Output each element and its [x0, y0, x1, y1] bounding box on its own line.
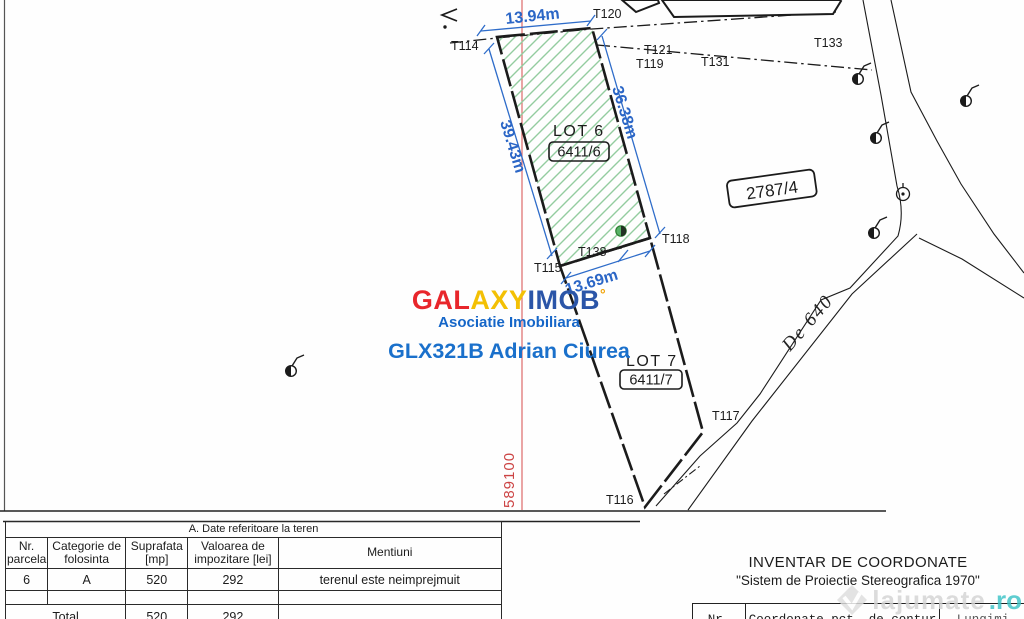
logo-segment-blue: IMOB	[527, 285, 600, 315]
agency-subtitle: Asociatie Imobiliara	[378, 315, 640, 331]
site-watermark: lajumate.ro	[835, 583, 1022, 617]
col-header-valoarea: Valoarea de impozitare [lei]	[188, 538, 278, 569]
empty-row	[6, 591, 502, 605]
land-data-table: A. Date referitoare la teren Nr. parcela…	[5, 521, 502, 619]
total-valoare: 292	[188, 605, 278, 619]
point-label-t119: T119	[636, 57, 664, 71]
road-edge-east	[891, 0, 1024, 273]
logo-registered-mark: °	[600, 286, 606, 302]
cell-valoare: 292	[188, 569, 278, 591]
direction-arrow-icon	[442, 9, 457, 29]
cell-mentiuni: terenul este neimprejmuit	[278, 569, 502, 591]
site-watermark-tld: .ro	[989, 585, 1022, 616]
point-label-t133: T133	[814, 36, 843, 50]
grid-coordinate-label: 589100	[501, 452, 518, 508]
coord-inventory-title: INVENTAR DE COORDONATE	[692, 554, 1024, 571]
table-section-title: A. Date referitoare la teren	[6, 522, 502, 538]
point-label-t120: T120	[593, 7, 622, 21]
road-axis-dashdot	[664, 466, 700, 494]
total-row: Total 520 292	[6, 605, 502, 619]
road-branch-southeast	[919, 238, 1024, 298]
road-de640-south-edge	[688, 234, 917, 510]
agency-logo: GALAXYIMOB°	[378, 286, 640, 314]
lot6-label: LOT 6	[553, 123, 605, 140]
cadastral-plan-page: 589100 13.94m 39.43m	[0, 0, 1024, 619]
point-label-t118: T118	[662, 232, 690, 246]
logo-segment-red: GAL	[412, 285, 471, 315]
table-row: 6 A 520 292 terenul este neimprejmuit	[6, 569, 502, 591]
agent-code: GLX321B Adrian Ciurea	[378, 340, 640, 363]
total-label: Total	[6, 605, 126, 619]
coord-col-nr: Nr.	[693, 604, 746, 619]
col-header-categorie: Categorie de folosinta	[48, 538, 126, 569]
top-parcel-large	[662, 0, 841, 17]
point-label-t116: T116	[606, 493, 634, 507]
cell-categorie: A	[48, 569, 126, 591]
utility-pole-icon	[961, 85, 979, 106]
utility-pole-icon	[853, 63, 871, 84]
point-label-t121: T121	[644, 43, 673, 57]
point-label-t114: T114	[451, 39, 479, 53]
point-label-t138: T138	[578, 245, 607, 259]
cell-nr: 6	[6, 569, 48, 591]
agency-watermark: GALAXYIMOB° Asociatie Imobiliara GLX321B…	[378, 286, 640, 363]
col-header-nr-parcela: Nr. parcela	[6, 538, 48, 569]
logo-segment-yellow: AXY	[470, 285, 527, 315]
lot6-parcel-number: 6411/6	[557, 145, 600, 161]
cell-suprafata: 520	[126, 569, 188, 591]
top-parcel-small	[622, 0, 659, 12]
lot7-parcel-number: 6411/7	[629, 373, 672, 389]
site-watermark-name: lajumate	[872, 585, 986, 616]
point-label-t115: T115	[534, 261, 562, 275]
col-header-suprafata: Suprafata [mp]	[126, 538, 188, 569]
point-label-t131: T131	[701, 55, 730, 69]
tree-icon	[616, 226, 626, 236]
total-suprafata: 520	[126, 605, 188, 619]
utility-pole-icon	[869, 217, 887, 238]
site-watermark-logo-icon	[835, 583, 869, 617]
parcel-2787-group: 2787/4	[726, 169, 817, 208]
col-header-mentiuni: Mentiuni	[278, 538, 502, 569]
point-label-t117: T117	[712, 409, 740, 423]
road-edge-west	[656, 0, 901, 506]
utility-pole-icon	[286, 355, 304, 376]
